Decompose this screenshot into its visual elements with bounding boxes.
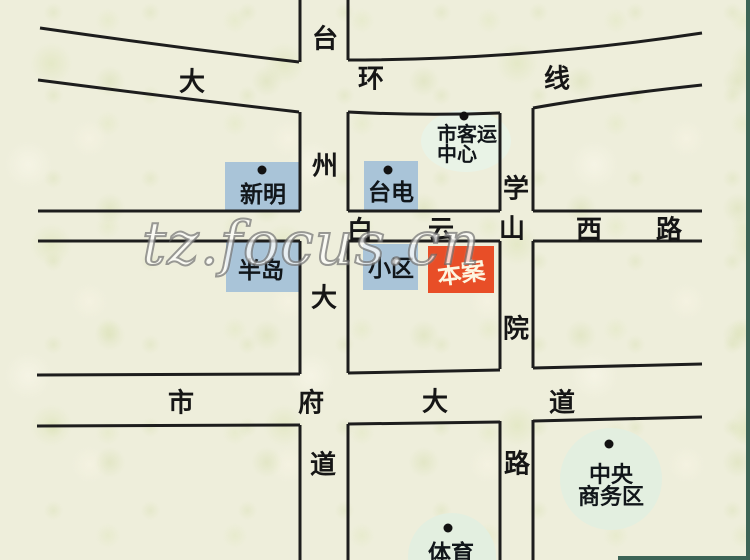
road-label-taizhou-char: 州: [312, 146, 338, 183]
road-shifu-bottom-edge: [37, 417, 702, 426]
scan-edge-right: [746, 0, 750, 560]
label-sports-center: 体育: [428, 534, 474, 560]
road-label-shifu-char: 道: [549, 383, 575, 420]
scan-edge-bottom: [618, 556, 750, 560]
marker-xinming: [258, 166, 267, 175]
label-xinming: 新明: [240, 175, 286, 209]
label-bus-terminal-line1: 市客运: [437, 125, 497, 145]
label-bus-terminal-line2: 中心: [437, 145, 497, 165]
road-shifu-top-edge: [37, 364, 702, 375]
road-label-xueyuan-char: 路: [504, 444, 530, 481]
label-bus-terminal: 市客运 中心: [437, 125, 497, 165]
road-label-taizhou-char: 台: [312, 19, 338, 56]
location-map: 大 环 线 台 州 大 道 白 云 山 西 路 学 院 路 市 府 大 道 新明…: [0, 0, 750, 560]
road-label-xueyuan-char: 学: [503, 169, 529, 206]
label-cbd: 中央 商务区: [578, 464, 644, 508]
road-label-ringroad-char: 大: [179, 62, 205, 99]
road-label-taizhou-char: 大: [311, 278, 337, 315]
watermark-text: tz.focus.cn: [142, 214, 480, 274]
marker-bus-terminal: [460, 112, 469, 121]
road-label-taizhou-char: 道: [310, 445, 336, 482]
road-label-baiyunshan-char: 山: [499, 209, 525, 246]
road-ringroad-lower-left: [38, 80, 299, 112]
road-label-baiyunshan-char: 路: [656, 210, 682, 247]
label-cbd-line2: 商务区: [578, 486, 644, 508]
road-label-ringroad-char: 线: [544, 59, 570, 96]
road-label-xueyuan-char: 院: [503, 309, 529, 346]
label-taidian: 台电: [368, 173, 414, 207]
road-label-shifu-char: 大: [422, 382, 448, 419]
road-ringroad-lower-mid: [348, 112, 500, 114]
road-ringroad-upper-left: [40, 28, 299, 62]
road-ringroad-upper-right: [348, 33, 702, 60]
marker-sports-center: [444, 524, 453, 533]
road-label-ringroad-char: 环: [358, 59, 384, 96]
road-label-shifu-char: 市: [168, 383, 194, 420]
label-cbd-line1: 中央: [578, 464, 644, 486]
road-label-baiyunshan-char: 西: [576, 210, 602, 247]
marker-cbd: [605, 440, 614, 449]
road-label-shifu-char: 府: [298, 383, 324, 420]
